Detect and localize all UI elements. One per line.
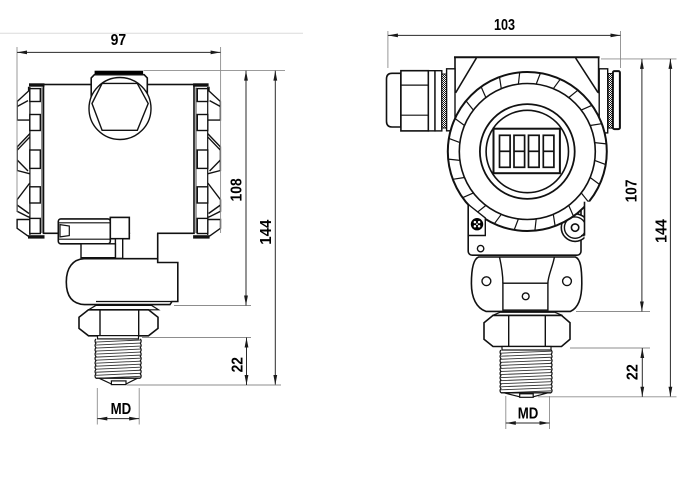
svg-text:97: 97 xyxy=(111,32,127,49)
svg-text:144: 144 xyxy=(258,220,275,245)
svg-text:103: 103 xyxy=(494,17,515,34)
svg-text:22: 22 xyxy=(230,357,247,372)
svg-text:22: 22 xyxy=(625,364,642,380)
svg-text:144: 144 xyxy=(654,219,671,243)
svg-text:MD: MD xyxy=(518,405,539,422)
svg-text:MD: MD xyxy=(111,401,132,418)
svg-text:107: 107 xyxy=(623,179,640,202)
svg-text:108: 108 xyxy=(228,178,245,201)
